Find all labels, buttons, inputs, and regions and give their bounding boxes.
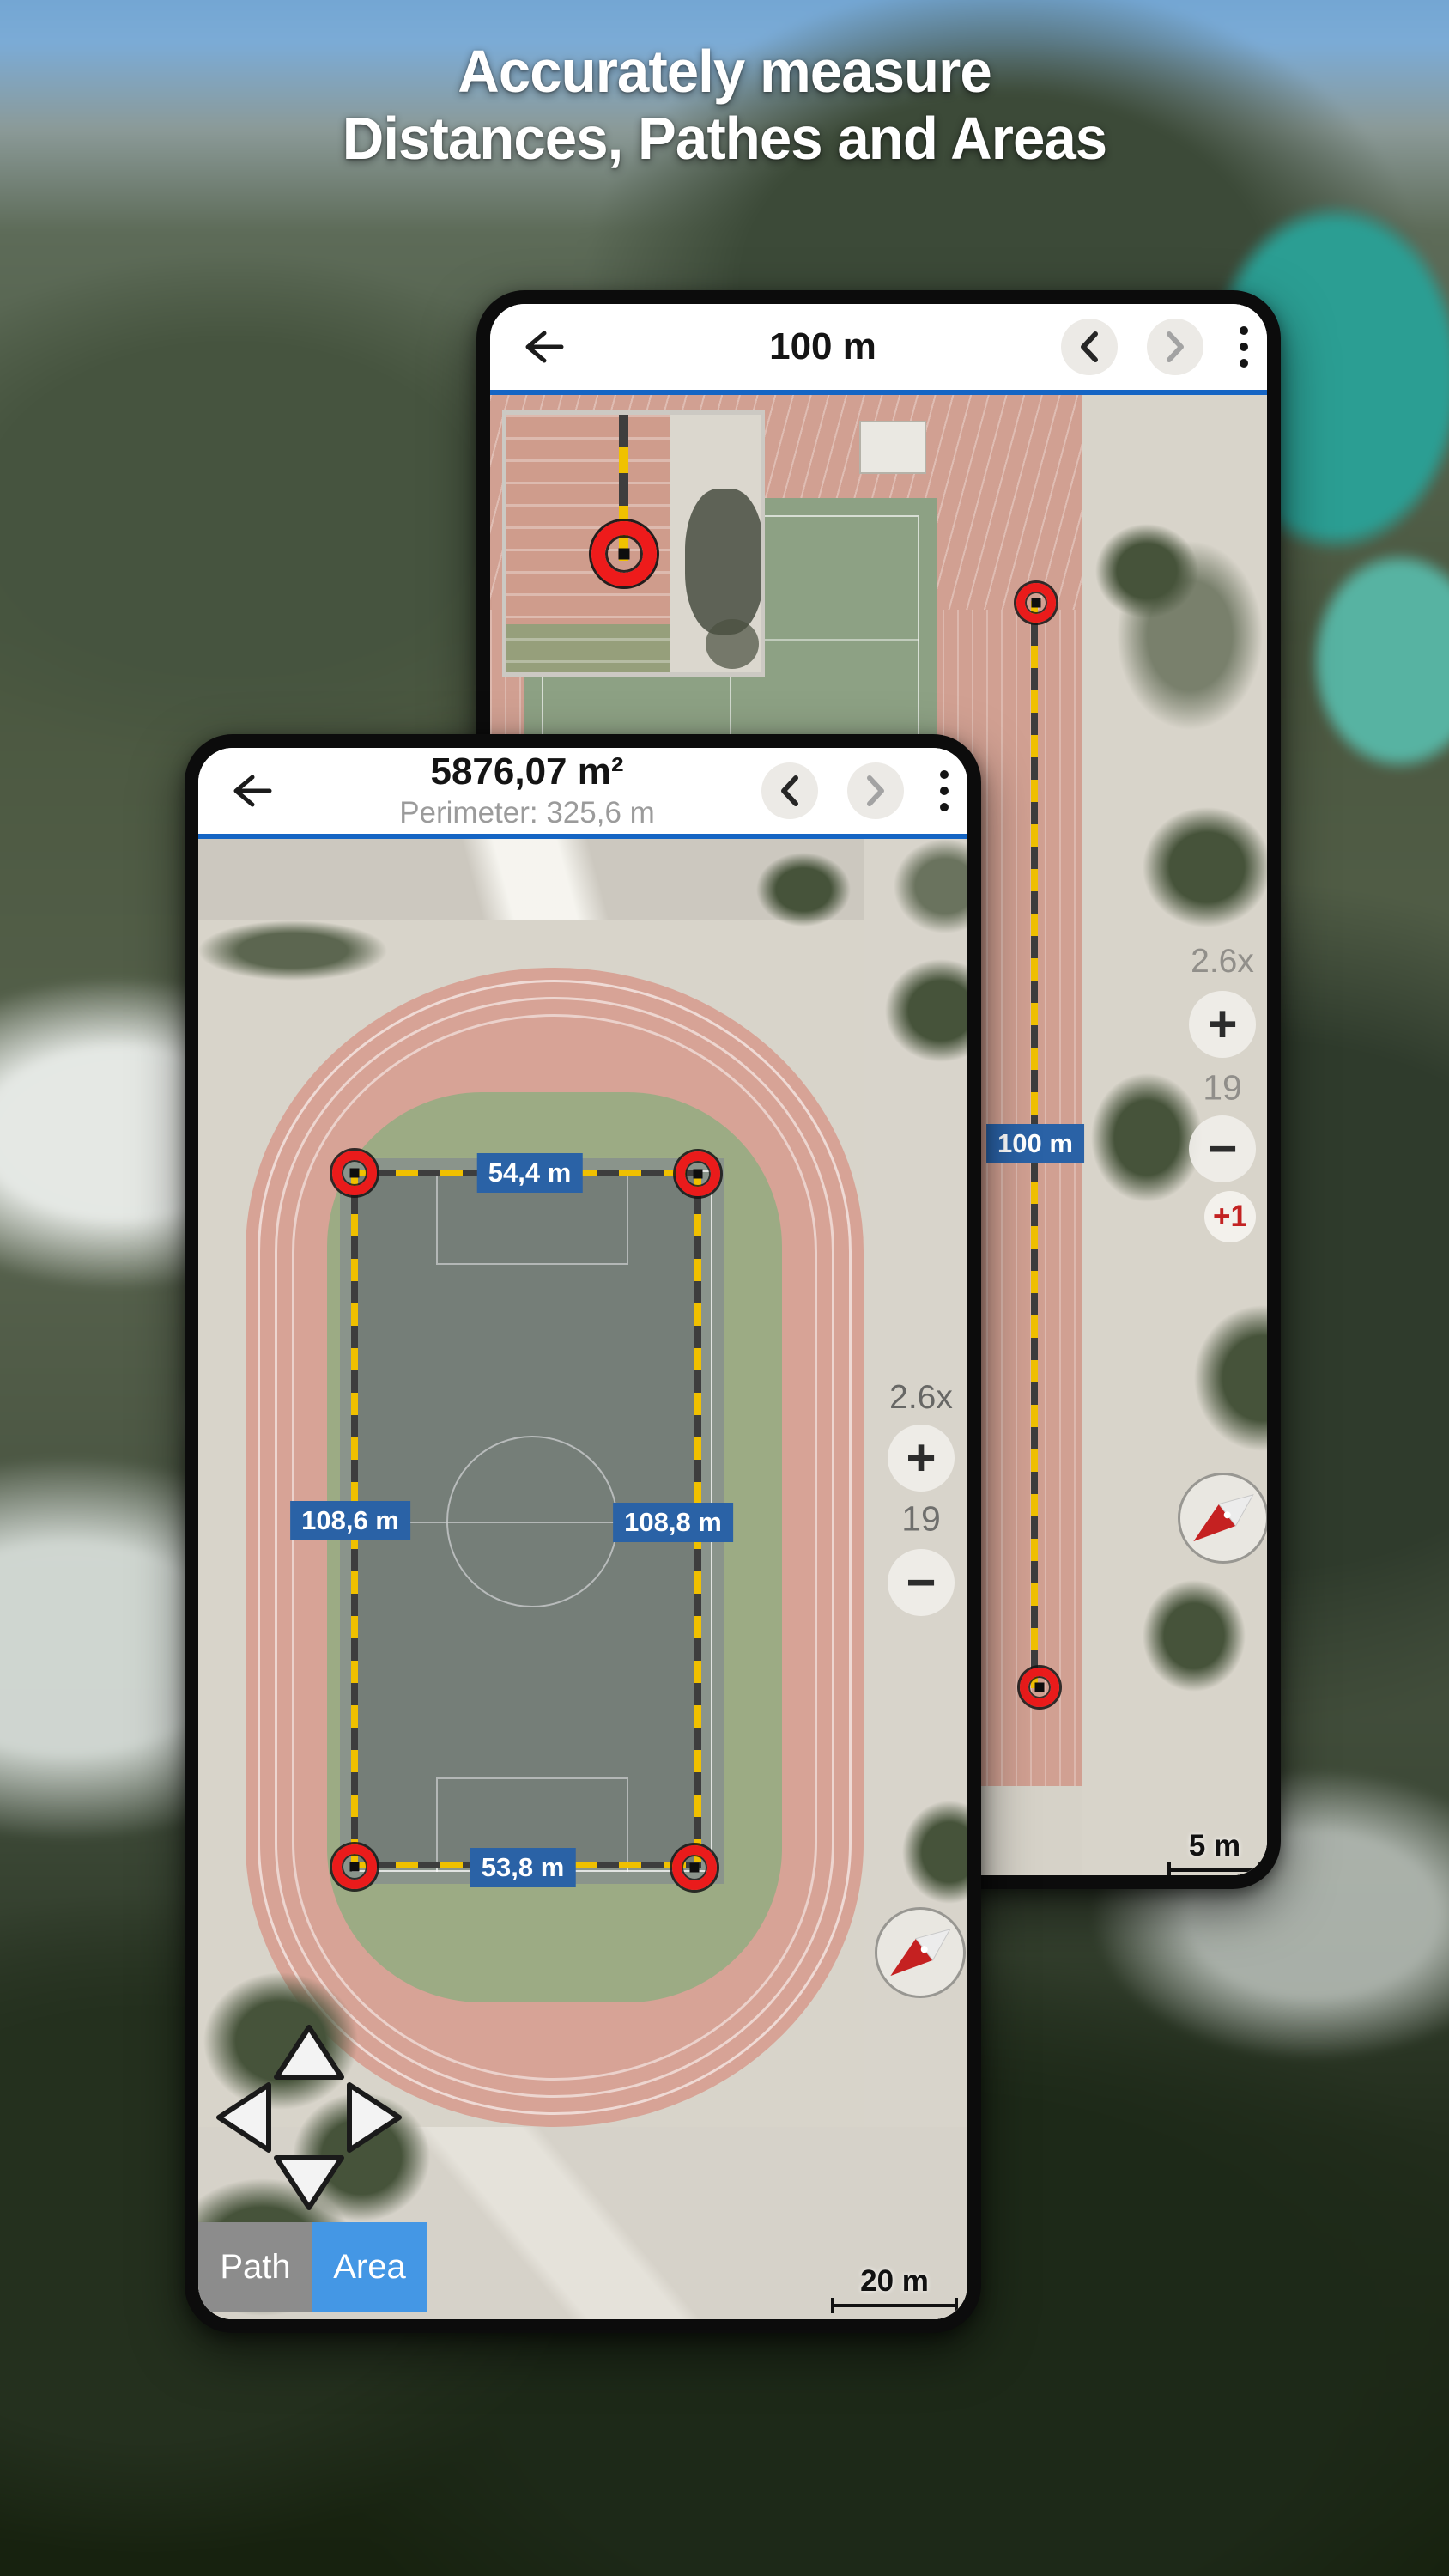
area-corner-marker-tl[interactable] (332, 1151, 377, 1195)
hero-title-line1: Accurately measure (29, 38, 1420, 105)
zoom-in-button[interactable]: + (1189, 991, 1256, 1058)
back-arrow-icon[interactable] (224, 770, 276, 811)
magnifier-point-marker (591, 521, 657, 586)
path-end-marker[interactable] (1020, 1668, 1059, 1707)
zoom-level-text: 19 (1203, 1068, 1242, 1109)
zoom-factor-text: 2.6x (1191, 943, 1254, 981)
side-length-label-top: 54,4 m (477, 1153, 583, 1193)
mode-button-path[interactable]: Path (198, 2222, 312, 2312)
map-scale-line (831, 2304, 958, 2307)
building-art (859, 421, 926, 474)
undo-point-button[interactable] (761, 762, 818, 819)
map-scale-label: 5 m (1167, 1829, 1262, 1863)
tree-art (1143, 1580, 1246, 1692)
zoom-in-button[interactable]: + (888, 1425, 955, 1492)
mode-button-area[interactable]: Area (312, 2222, 427, 2312)
undo-point-button[interactable] (1061, 319, 1118, 375)
zoom-out-button[interactable]: − (1189, 1115, 1256, 1182)
side-length-label-right: 108,8 m (613, 1503, 733, 1542)
area-screen: 5876,07 m² Perimeter: 325,6 m (198, 748, 967, 2319)
distance-appbar: 100 m (490, 304, 1267, 390)
back-arrow-icon[interactable] (516, 326, 567, 368)
pan-dpad (214, 2022, 404, 2213)
pan-up-button[interactable] (273, 2022, 345, 2087)
side-length-label-bottom: 53,8 m (470, 1848, 576, 1887)
add-point-button[interactable]: +1 (1204, 1191, 1256, 1242)
map-scale: 5 m (1167, 1829, 1262, 1872)
area-appbar: 5876,07 m² Perimeter: 325,6 m (198, 748, 967, 834)
chevron-right-icon (1161, 328, 1190, 366)
compass-button[interactable] (877, 1910, 963, 1996)
triangle-right-icon (344, 2081, 404, 2154)
map-scale-line (1167, 1868, 1262, 1872)
map-scale-label: 20 m (831, 2264, 958, 2299)
zoom-level-text: 19 (901, 1499, 941, 1540)
distance-segment-label: 100 m (986, 1124, 1084, 1163)
perimeter-value: Perimeter: 325,6 m (301, 796, 753, 830)
shadow-art (1117, 541, 1263, 730)
redo-point-button[interactable] (1147, 319, 1203, 375)
triangle-up-icon (273, 2022, 345, 2082)
zoom-out-button[interactable]: − (888, 1549, 955, 1616)
area-map[interactable]: 54,4 m 108,6 m 108,8 m 53,8 m 2.6x + 19 … (198, 839, 967, 2319)
pan-right-button[interactable] (344, 2081, 404, 2158)
road-art (198, 839, 967, 920)
area-corner-marker-tr[interactable] (676, 1151, 720, 1196)
magnifier-shadow-art (706, 619, 759, 669)
appbar-actions (761, 762, 955, 819)
hedge-art (198, 920, 387, 981)
appbar-actions (1061, 319, 1255, 375)
area-corner-marker-bl[interactable] (332, 1844, 377, 1889)
distance-value: 100 m (593, 326, 1052, 368)
hero-title: Accurately measure Distances, Pathes and… (29, 38, 1420, 173)
chevron-left-icon (1075, 328, 1104, 366)
tree-art (1143, 807, 1267, 927)
area-corner-marker-br[interactable] (672, 1845, 717, 1890)
pan-left-button[interactable] (214, 2081, 274, 2158)
pan-down-button[interactable] (273, 2153, 345, 2217)
chevron-left-icon (775, 772, 804, 810)
overflow-menu-icon[interactable] (1233, 323, 1255, 371)
triangle-left-icon (214, 2081, 274, 2154)
measurement-title: 100 m (593, 326, 1052, 368)
measurement-title: 5876,07 m² Perimeter: 325,6 m (301, 751, 753, 830)
map-scale: 20 m (831, 2264, 958, 2307)
overflow-menu-icon[interactable] (933, 767, 955, 815)
hero-title-line2: Distances, Pathes and Areas (29, 105, 1420, 172)
path-start-marker[interactable] (1016, 583, 1056, 623)
mode-switch: Path Area (198, 2222, 427, 2312)
triangle-down-icon (273, 2153, 345, 2213)
zoom-factor-text: 2.6x (889, 1379, 953, 1417)
tree-art (756, 853, 851, 927)
chevron-right-icon (861, 772, 890, 810)
tree-art (1091, 1073, 1203, 1202)
side-length-label-left: 108,6 m (290, 1501, 410, 1540)
magnifier-path-line (619, 415, 628, 526)
compass-button[interactable] (1180, 1475, 1266, 1561)
magnifier-shadow-art (685, 489, 764, 635)
phone-mockup-area: 5876,07 m² Perimeter: 325,6 m (185, 734, 981, 2333)
redo-point-button[interactable] (847, 762, 904, 819)
area-value: 5876,07 m² (301, 751, 753, 793)
magnifier-inset (502, 410, 765, 677)
